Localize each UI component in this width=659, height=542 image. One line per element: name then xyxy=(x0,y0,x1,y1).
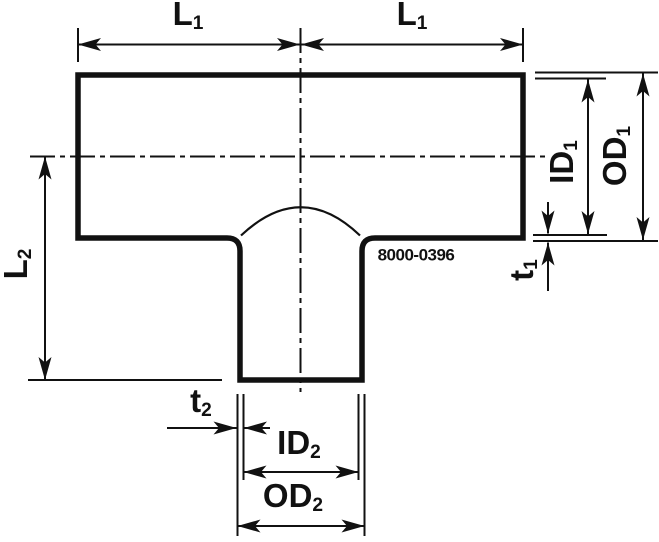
label-l1-left-main: L xyxy=(173,0,193,32)
label-l1-right-sub: 1 xyxy=(417,13,428,34)
label-t2: t2 xyxy=(190,384,212,420)
label-l1-right: L1 xyxy=(397,0,428,33)
extension-lines xyxy=(28,28,658,536)
label-id2: ID2 xyxy=(277,426,321,462)
label-od1-main: OD xyxy=(596,137,633,187)
label-id1: ID1 xyxy=(545,140,581,184)
label-id2-main: ID xyxy=(277,424,310,461)
label-od2-main: OD xyxy=(263,477,313,514)
dimension-lines xyxy=(45,45,643,527)
label-t1-main: t xyxy=(503,270,540,281)
label-l1-left-sub: 1 xyxy=(193,13,204,34)
label-l2: L2 xyxy=(0,249,35,280)
label-t2-sub: 2 xyxy=(201,400,212,421)
label-l2-main: L xyxy=(0,259,34,279)
label-l1-right-main: L xyxy=(397,0,417,32)
drawing-canvas xyxy=(0,0,659,542)
part-number: 8000-0396 xyxy=(378,247,455,264)
label-t2-main: t xyxy=(190,382,201,419)
label-od1-sub: 1 xyxy=(614,126,635,137)
label-t1-sub: 1 xyxy=(521,259,542,270)
centerlines xyxy=(30,28,547,392)
technical-drawing: L1 L1 L2 ID1 OD1 t1 t2 ID2 OD2 8000-0396 xyxy=(0,0,659,542)
label-t1: t1 xyxy=(505,259,541,281)
label-od2-sub: 2 xyxy=(312,495,323,516)
label-l1-left: L1 xyxy=(173,0,204,33)
label-id2-sub: 2 xyxy=(310,442,321,463)
label-od1: OD1 xyxy=(598,126,634,186)
label-od2: OD2 xyxy=(263,479,323,515)
label-id1-sub: 1 xyxy=(561,140,582,151)
label-id1-main: ID xyxy=(543,151,580,184)
label-l2-sub: 2 xyxy=(15,249,36,260)
